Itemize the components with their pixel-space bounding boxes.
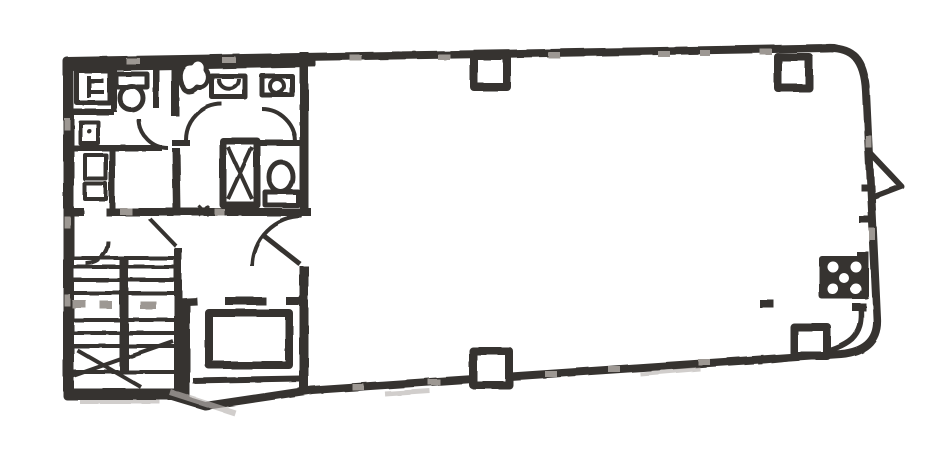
column-icon	[778, 57, 809, 88]
service-unit-with-ports	[819, 256, 869, 299]
floor-plan-canvas	[0, 0, 930, 453]
right-wall-nub	[859, 216, 870, 223]
wall-joint-tick	[215, 209, 225, 216]
wall-joint-tick	[352, 384, 364, 390]
sink-bowl-detail	[270, 79, 284, 93]
wall-joint-tick	[760, 49, 772, 55]
toilet-bowl-icon	[269, 162, 293, 192]
door-swing-arc	[262, 109, 295, 142]
washroom-center	[180, 59, 298, 216]
wash-basin-unit-icon	[77, 71, 110, 103]
wall-joint-tick	[866, 136, 872, 148]
smudge-line	[385, 391, 430, 394]
wall-mid-vertical	[176, 148, 177, 213]
column-blob-icon	[180, 59, 209, 91]
wall-joint-tick	[658, 51, 670, 57]
wall-joint-tick	[438, 54, 450, 60]
floor-plan-drawing	[64, 48, 901, 413]
wall-joint-tick	[64, 294, 70, 306]
wall-joint-tick	[64, 216, 70, 228]
right-wall-nub	[760, 300, 774, 308]
elevator-bottom-inner-wall	[193, 379, 301, 381]
wall-joint-tick	[608, 366, 620, 372]
stair-door-leaf	[150, 219, 176, 246]
service-port	[828, 284, 839, 295]
wall-joint-tick	[350, 55, 362, 61]
service-port	[851, 284, 862, 295]
wall-joint-tick	[698, 359, 710, 365]
wall-joint-tick	[120, 208, 132, 215]
toilet-bowl-icon	[120, 86, 143, 110]
wall-joint-tick	[428, 379, 440, 385]
open-floor-area	[473, 56, 901, 385]
stair-landing-mark	[100, 301, 112, 309]
column-icon	[794, 327, 827, 356]
hallway	[252, 216, 302, 266]
elevator-top-wall-seg	[178, 301, 197, 302]
wall-joint-tick	[222, 57, 236, 63]
right-wall-nub	[857, 252, 869, 260]
wall-joint-tick	[869, 228, 875, 240]
service-port	[828, 262, 839, 273]
column-icon	[474, 56, 507, 87]
wall-joint-tick	[700, 50, 710, 56]
right-wall-nub	[861, 184, 872, 191]
scan-smudges	[80, 369, 700, 413]
shelf-box-icon	[85, 155, 106, 179]
wall-joint-tick	[126, 58, 140, 64]
door-swing-arc	[186, 104, 222, 140]
wall-joint-tick	[545, 371, 557, 377]
elevator-shaft	[178, 299, 304, 402]
right-wall-nub	[852, 303, 866, 311]
shelf-box-icon	[85, 184, 106, 199]
service-port	[851, 262, 862, 273]
stair-landing-mark	[72, 300, 86, 308]
column-icon	[473, 351, 509, 385]
door-marker-triangle-icon	[870, 153, 901, 197]
service-port	[839, 273, 849, 283]
door-swing-arc	[139, 119, 168, 148]
stair-landing-mark	[140, 301, 156, 309]
door-leaf	[263, 235, 300, 264]
wall-joint-tick	[64, 118, 70, 130]
sink-drain-dot	[87, 129, 92, 134]
wall-joint-tick	[548, 52, 560, 58]
elevator-cab	[209, 313, 289, 365]
